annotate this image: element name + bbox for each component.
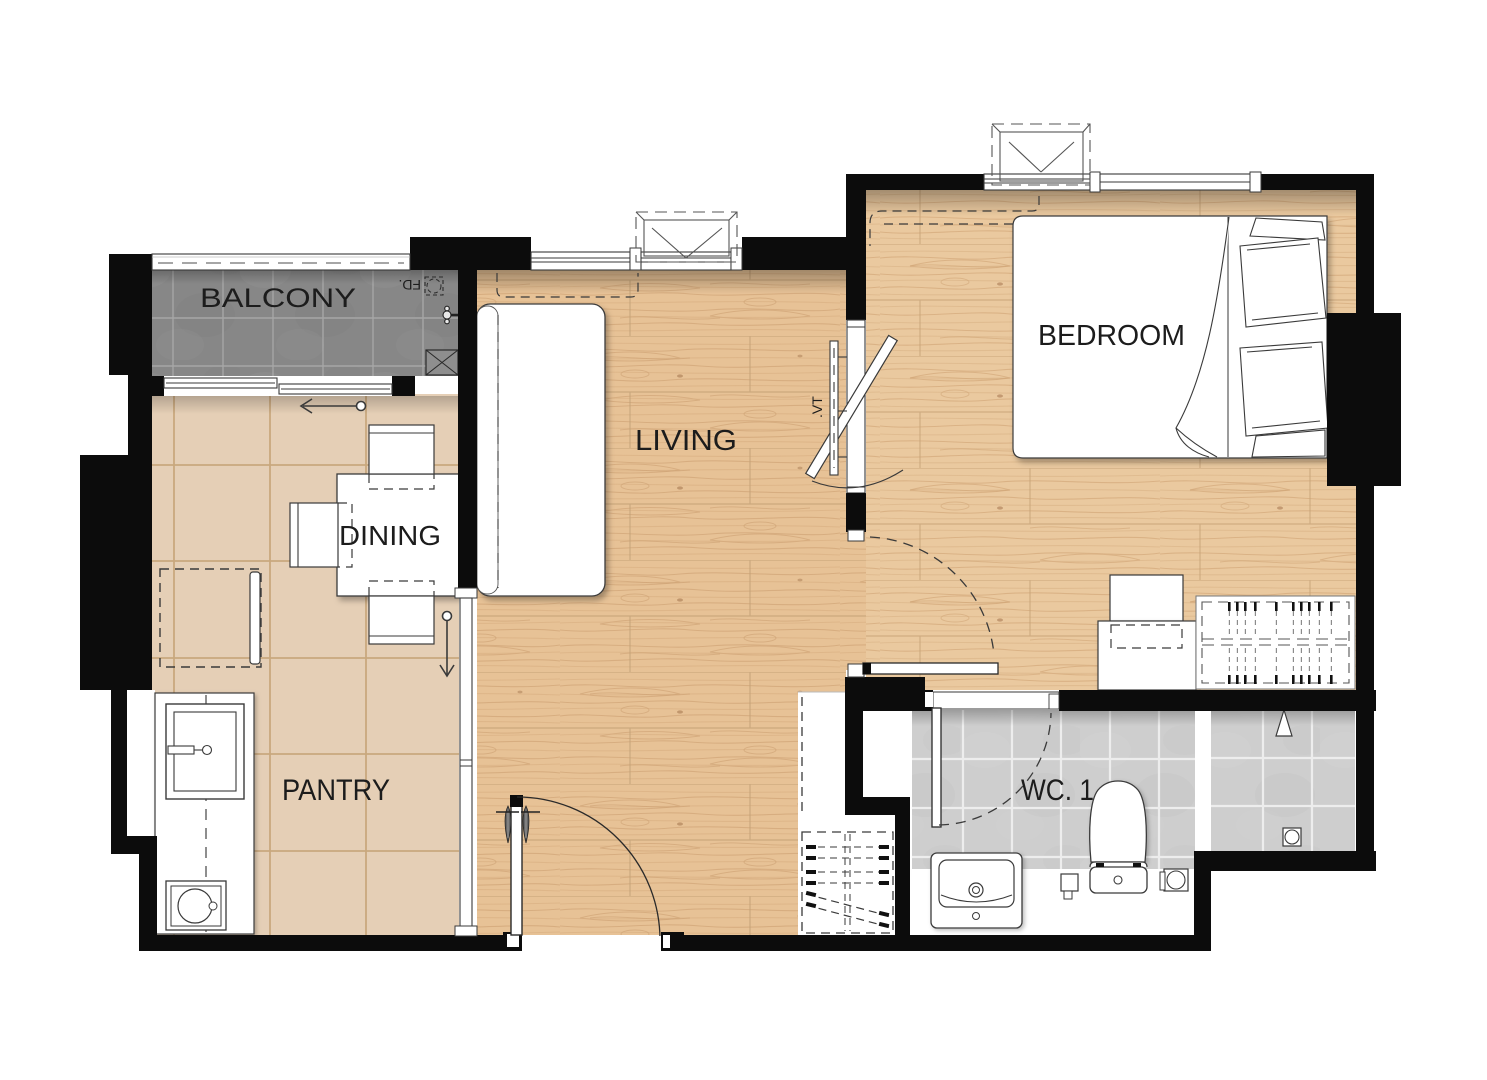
svg-text:WC. 1: WC. 1 (1021, 774, 1094, 807)
svg-text:BALCONY: BALCONY (200, 283, 356, 313)
svg-text:.VT: .VT (809, 396, 825, 418)
svg-text:DINING: DINING (339, 520, 441, 551)
svg-text:FD.: FD. (398, 277, 421, 293)
svg-text:PANTRY: PANTRY (282, 774, 390, 807)
svg-text:BEDROOM: BEDROOM (1038, 320, 1185, 352)
svg-text:LIVING: LIVING (635, 425, 737, 457)
